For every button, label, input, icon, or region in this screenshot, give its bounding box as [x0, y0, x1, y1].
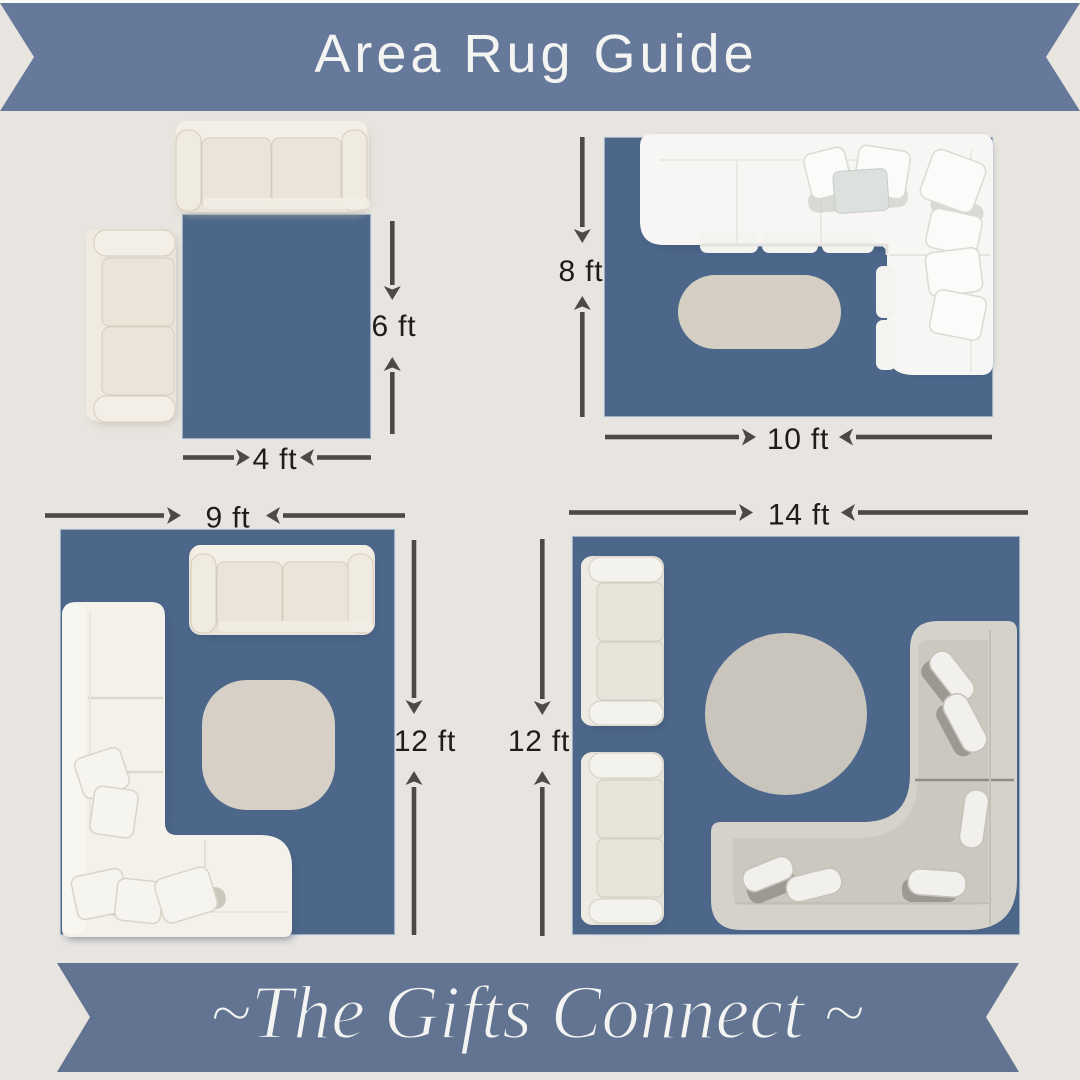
svg-text:8 ft: 8 ft	[559, 255, 604, 288]
svg-text:Area Rug Guide: Area Rug Guide	[314, 24, 757, 84]
svg-text:~The Gifts Connect ~: ~The Gifts Connect ~	[210, 971, 864, 1055]
svg-text:6 ft: 6 ft	[372, 310, 417, 343]
svg-text:12 ft: 12 ft	[394, 725, 456, 758]
svg-text:4 ft: 4 ft	[253, 443, 298, 476]
svg-text:14 ft: 14 ft	[768, 499, 830, 532]
svg-text:12 ft: 12 ft	[508, 725, 570, 758]
svg-text:10 ft: 10 ft	[767, 423, 829, 456]
